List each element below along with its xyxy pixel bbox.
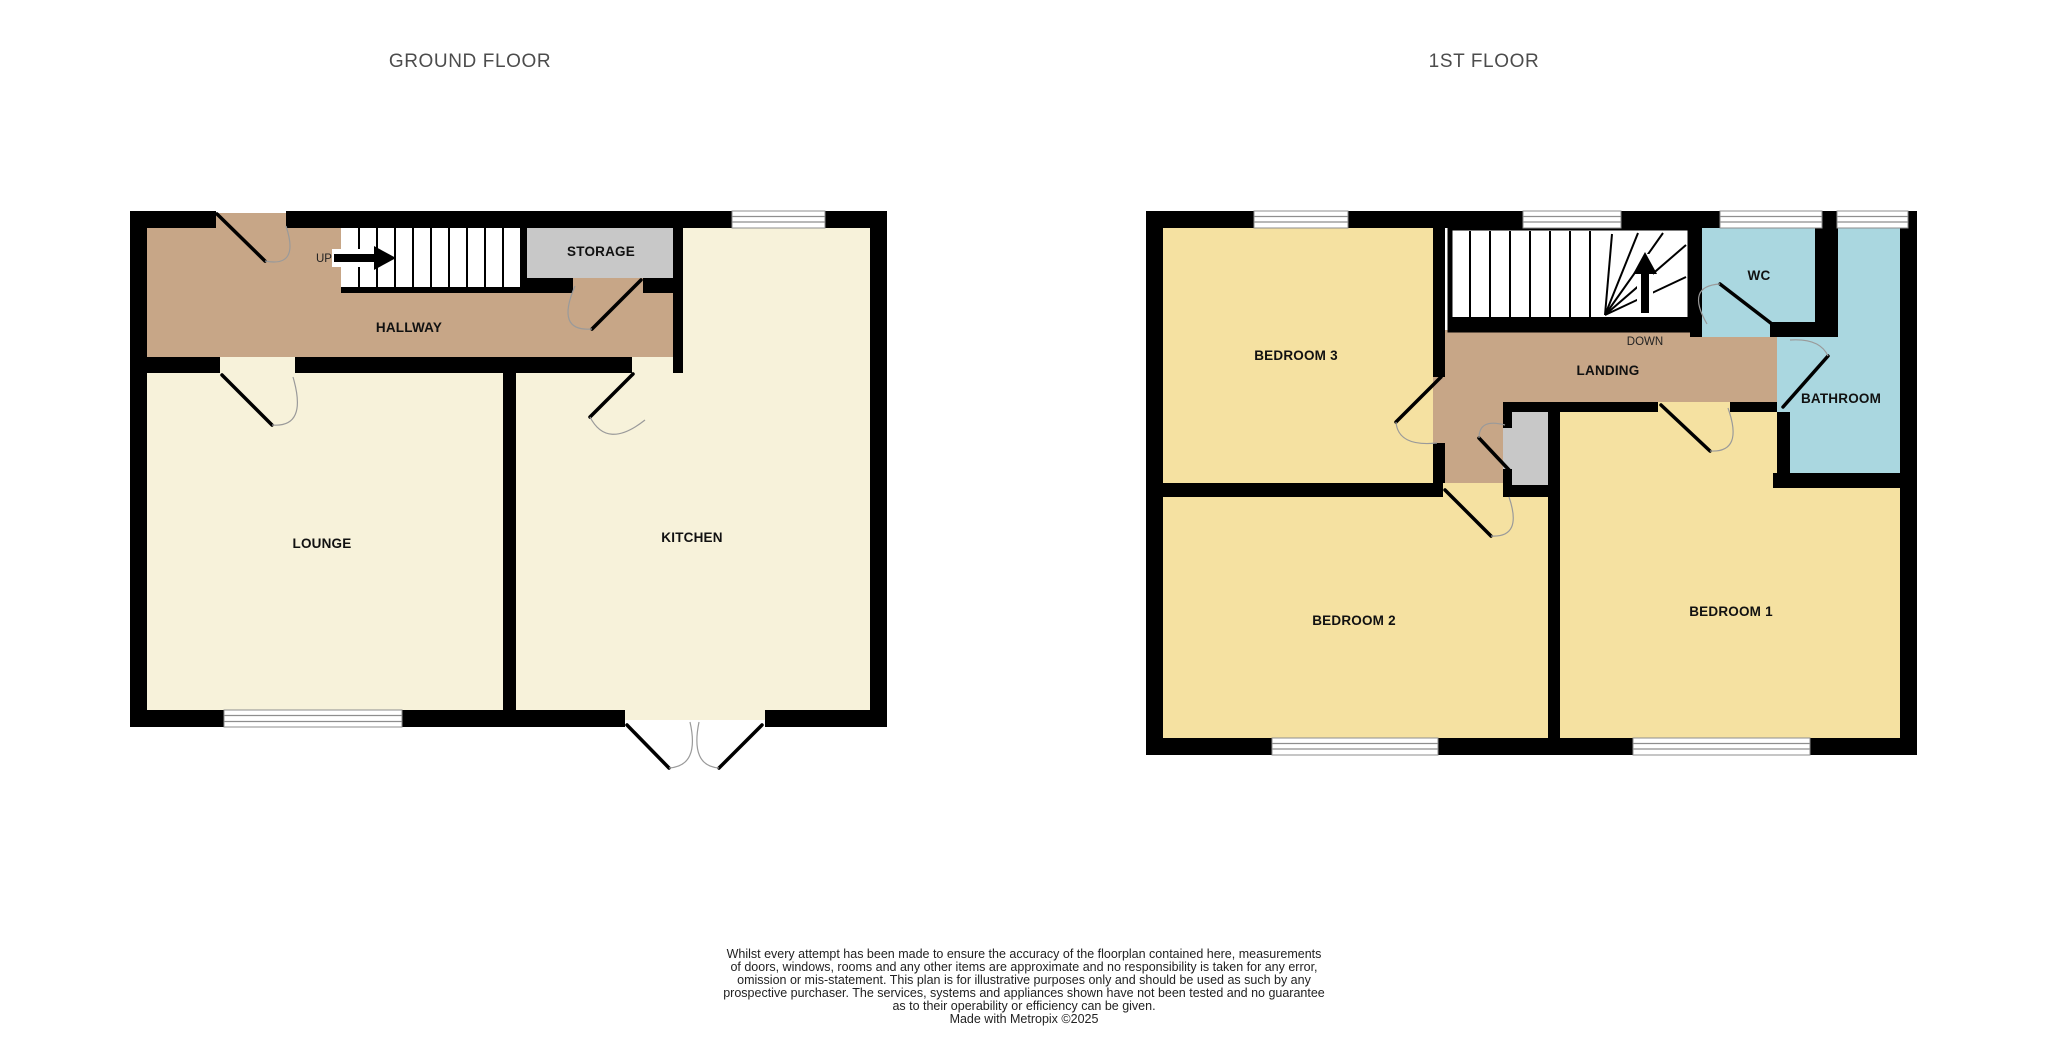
room-bedroom-1 <box>1560 402 1777 738</box>
room-kitchen-upper <box>683 228 870 373</box>
label-bedroom-3: BEDROOM 3 <box>1254 348 1338 363</box>
door-french-doors <box>627 722 762 768</box>
window-kitchen-top <box>732 211 825 228</box>
window-lounge-bottom <box>224 710 402 727</box>
floorplan-first-floor: 1ST FLOOR <box>1146 51 1917 755</box>
french-doorway-floor <box>625 710 765 720</box>
window-bedroom2-bottom <box>1272 738 1438 755</box>
disclaimer-line: Whilst every attempt has been made to en… <box>614 948 1434 961</box>
disclaimer-line: prospective purchaser. The services, sys… <box>614 987 1434 1000</box>
room-bedroom-1-right <box>1777 488 1900 738</box>
label-lounge: LOUNGE <box>293 536 352 551</box>
landing-corridor <box>1445 402 1505 483</box>
window-bathroom-top <box>1837 211 1908 228</box>
label-bathroom: BATHROOM <box>1801 391 1881 406</box>
label-hallway: HALLWAY <box>376 320 442 335</box>
kitchen-doorway-floor <box>632 357 673 373</box>
first-floor-title: 1ST FLOOR <box>1429 51 1540 72</box>
label-landing: LANDING <box>1577 363 1640 378</box>
disclaimer-text: Whilst every attempt has been made to en… <box>614 948 1434 1025</box>
floorplan-page: GROUND FLOOR <box>0 0 2048 1049</box>
disclaimer-line: as to their operability or efficiency ca… <box>614 1000 1434 1013</box>
window-bedroom1-bottom <box>1633 738 1810 755</box>
window-landing-top <box>1523 211 1621 228</box>
stair-direction-up: UP <box>316 253 332 265</box>
bedroom2-doorway-floor <box>1443 483 1510 497</box>
floorplan-ground-floor: GROUND FLOOR <box>130 51 887 768</box>
stair-direction-down: DOWN <box>1627 336 1663 348</box>
label-kitchen: KITCHEN <box>661 530 722 545</box>
disclaimer-credit: Made with Metropix ©2025 <box>614 1013 1434 1026</box>
ground-floor-title: GROUND FLOOR <box>389 51 551 72</box>
up-arrow-icon <box>332 246 396 270</box>
disclaimer-line: omission or mis-statement. This plan is … <box>614 974 1434 987</box>
window-wc-top <box>1720 211 1822 228</box>
label-storage: STORAGE <box>567 244 635 259</box>
room-bathroom-top <box>1838 228 1900 337</box>
label-bedroom-2: BEDROOM 2 <box>1312 613 1396 628</box>
bedroom3-doorway-floor <box>1433 377 1445 443</box>
label-bedroom-1: BEDROOM 1 <box>1689 604 1773 619</box>
lounge-doorway-floor <box>220 357 295 373</box>
floorplan-canvas: GROUND FLOOR <box>0 0 2048 1049</box>
window-bedroom3-top <box>1254 211 1348 228</box>
label-wc: WC <box>1748 268 1771 283</box>
disclaimer-line: of doors, windows, rooms and any other i… <box>614 961 1434 974</box>
